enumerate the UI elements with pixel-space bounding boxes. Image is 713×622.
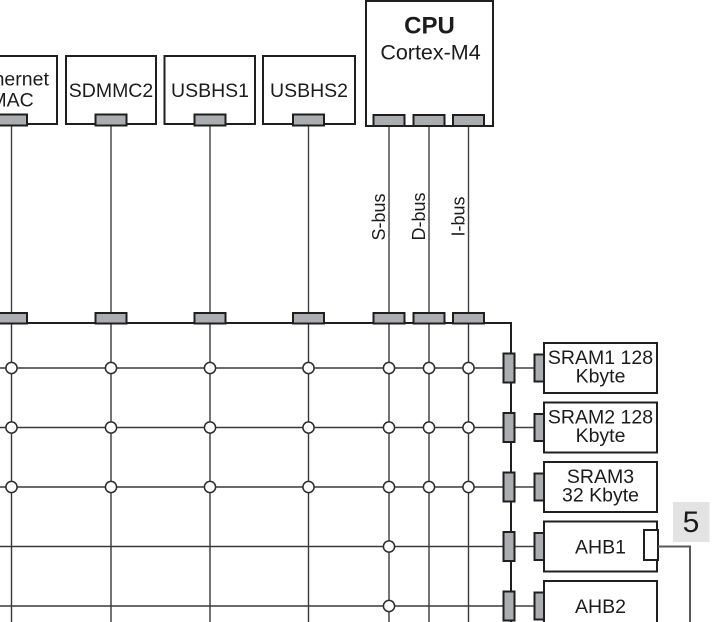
svg-text:Kbyte: Kbyte: [576, 425, 626, 447]
svg-text:AHB2: AHB2: [575, 596, 626, 618]
svg-text:D-bus: D-bus: [409, 192, 429, 240]
svg-text:32 Kbyte: 32 Kbyte: [562, 485, 639, 507]
svg-text:USBHS1: USBHS1: [171, 80, 249, 102]
svg-text:Kbyte: Kbyte: [576, 366, 626, 388]
svg-text:AHB1: AHB1: [575, 537, 626, 559]
svg-text:MAC: MAC: [0, 90, 34, 112]
svg-text:Ethernet: Ethernet: [0, 69, 49, 91]
svg-text:SDMMC2: SDMMC2: [69, 80, 154, 102]
svg-text:I-bus: I-bus: [449, 196, 469, 236]
svg-text:Cortex-M4: Cortex-M4: [380, 41, 480, 65]
svg-text:CPU: CPU: [404, 13, 455, 40]
svg-text:S-bus: S-bus: [369, 193, 389, 240]
svg-text:5: 5: [683, 506, 700, 539]
svg-text:USBHS2: USBHS2: [270, 80, 348, 102]
